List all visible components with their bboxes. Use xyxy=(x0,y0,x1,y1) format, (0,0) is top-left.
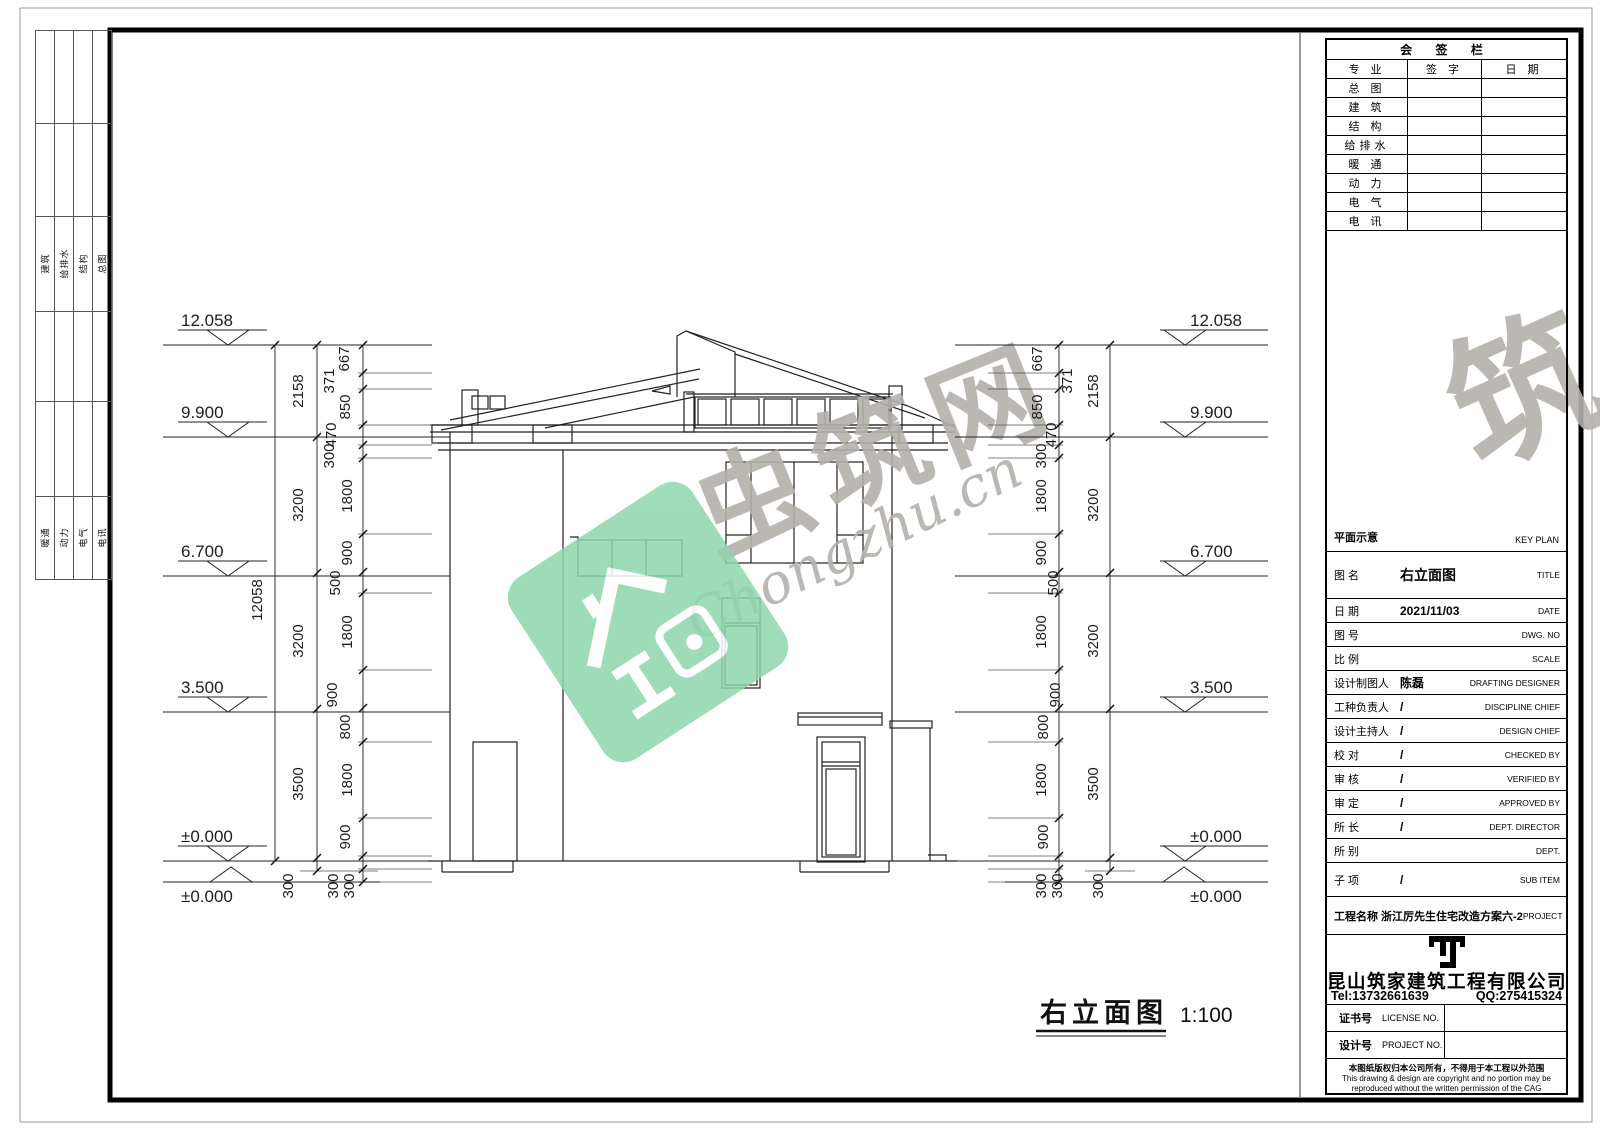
dim-text: 3500 xyxy=(290,767,307,800)
row-label-cn: 子 项 xyxy=(1327,872,1400,888)
discipline-label: 动 力 xyxy=(1327,174,1407,192)
strip-label: 建筑 xyxy=(36,216,54,311)
row-value: / xyxy=(1400,772,1507,786)
row-label-en: DEPT. xyxy=(1536,846,1566,856)
dim-text: 2158 xyxy=(1085,374,1102,407)
row-label-en: DWG. NO xyxy=(1522,630,1566,640)
discipline-label: 总 图 xyxy=(1327,79,1407,97)
dim-text: 850 xyxy=(1029,394,1046,419)
row-value: / xyxy=(1400,700,1485,714)
col-header: 日 期 xyxy=(1481,60,1566,78)
row-project-name: 工程名称 浙江厉先生住宅改造方案六-2 PROJECT xyxy=(1327,896,1566,934)
row-approved-by: 审 定 / APPROVED BY xyxy=(1327,790,1566,814)
left-fine-dimensions: 667 371 850 470 300 1800 900 500 1800 90… xyxy=(321,346,358,898)
dim-text: 800 xyxy=(337,714,354,739)
dim-text: 667 xyxy=(1029,346,1046,371)
strip-label: 动力 xyxy=(55,496,73,579)
drawing-label: 右立面图 1:100 xyxy=(1036,997,1233,1036)
drawing-sheet: 虫筑网 筑 Chongzhu.cn 667 371 850 470 300 18… xyxy=(0,0,1600,1130)
dim-text: 500 xyxy=(327,570,344,595)
col-header: 专 业 xyxy=(1327,60,1407,78)
row-value: / xyxy=(1400,724,1500,738)
dim-text: 300 xyxy=(321,443,338,468)
dim-text: 850 xyxy=(337,394,354,419)
signature-row: 动 力 xyxy=(1327,173,1566,192)
row-value: / xyxy=(1400,748,1505,762)
row-label-cn: 审 定 xyxy=(1327,795,1400,811)
signature-row: 建 筑 xyxy=(1327,97,1566,116)
row-label-cn: 审 核 xyxy=(1327,771,1400,787)
level-text: 12.058 xyxy=(181,311,233,330)
dim-text: 3200 xyxy=(290,488,307,521)
row-label-en: DISCIPLINE CHIEF xyxy=(1485,702,1566,712)
signature-row: 暖 通 xyxy=(1327,154,1566,173)
row-title: 图 名 右立面图 TITLE xyxy=(1327,551,1566,598)
discipline-label: 暖 通 xyxy=(1327,155,1407,173)
row-design-chief: 设计主持人 / DESIGN CHIEF xyxy=(1327,718,1566,742)
strip-divider xyxy=(36,311,111,312)
row-label-cn: 设计主持人 xyxy=(1327,723,1400,739)
row-label-cn: 所 别 xyxy=(1327,843,1400,859)
row-dept-director: 所 长 / DEPT. DIRECTOR xyxy=(1327,814,1566,838)
strip-label-text: 结构 xyxy=(77,253,90,273)
row-label-en: PROJECT xyxy=(1523,911,1569,921)
strip-label-text: 给排水 xyxy=(58,248,71,278)
license-label-cn: 证书号 xyxy=(1339,1010,1372,1026)
dim-text: 300 xyxy=(280,873,297,898)
dim-text: 2158 xyxy=(290,374,307,407)
dim-text: 800 xyxy=(1035,714,1052,739)
strip-label: 给排水 xyxy=(55,216,73,311)
strip-label: 电气 xyxy=(74,496,92,579)
key-plan-label-cn: 平面示意 xyxy=(1334,529,1378,545)
company-tel: Tel:13732661639 xyxy=(1331,989,1429,1003)
col-header: 签 字 xyxy=(1407,60,1481,78)
row-label-cn: 校 对 xyxy=(1327,747,1400,763)
level-text: 3.500 xyxy=(1190,678,1233,697)
dim-text: 300 xyxy=(1033,873,1050,898)
dim-text: 900 xyxy=(1035,824,1052,849)
binding-strip: 建筑 给排水 结构 总图 暖通 动力 电气 电讯 xyxy=(35,30,112,580)
dim-text: 300 xyxy=(1090,873,1107,898)
level-text: ±0.000 xyxy=(1190,887,1242,906)
license-label-en: LICENSE NO. xyxy=(1382,1013,1439,1023)
row-drafting-designer: 设计制图人 陈磊 DRAFTING DESIGNER xyxy=(1327,670,1566,694)
row-checked-by: 校 对 / CHECKED BY xyxy=(1327,742,1566,766)
level-text: 9.900 xyxy=(181,403,224,422)
signature-row: 总 图 xyxy=(1327,78,1566,97)
row-label-en: CHECKED BY xyxy=(1505,750,1566,760)
level-text: 6.700 xyxy=(1190,542,1233,561)
copyright-cn: 本图纸版权归本公司所有，不得用于本工程以外范围 xyxy=(1327,1062,1566,1074)
level-mark: 12.058 xyxy=(163,311,432,345)
strip-label: 结构 xyxy=(74,216,92,311)
dim-text: 3500 xyxy=(1085,767,1102,800)
row-label-cn: 设计制图人 xyxy=(1327,675,1400,691)
dim-text: 1800 xyxy=(339,615,356,648)
strip-divider xyxy=(36,123,111,124)
dim-text: 667 xyxy=(336,346,353,371)
dim-text: 900 xyxy=(324,682,341,707)
left-coarse-dimensions: 2158 3200 3200 3500 300 12058 xyxy=(249,374,307,898)
discipline-label: 给排水 xyxy=(1327,136,1407,154)
row-label-en: DEPT. DIRECTOR xyxy=(1489,822,1566,832)
drawing-scale-text: 1:100 xyxy=(1180,1004,1233,1027)
discipline-label: 结 构 xyxy=(1327,117,1407,135)
dim-text: 900 xyxy=(339,540,356,565)
row-label-en: DATE xyxy=(1538,606,1566,616)
strip-label-text: 建筑 xyxy=(39,253,52,273)
row-discipline-chief: 工种负责人 / DISCIPLINE CHIEF xyxy=(1327,694,1566,718)
copyright-en-line1: This drawing & design are copyright and … xyxy=(1327,1074,1566,1084)
row-label-cn: 图 号 xyxy=(1327,627,1400,643)
project-no-label-cn: 设计号 xyxy=(1339,1037,1372,1053)
row-label-cn: 日 期 xyxy=(1327,603,1400,619)
row-label-en: TITLE xyxy=(1537,570,1566,580)
level-text: 6.700 xyxy=(181,542,224,561)
right-coarse-dimensions: 2158 3200 3200 3500 300 xyxy=(1085,374,1107,898)
dim-text: 900 xyxy=(1033,540,1050,565)
signature-bar: 会 签 栏 专 业 签 字 日 期 总 图 建 筑 结 构 给排水 暖 通 动 … xyxy=(1327,40,1566,230)
row-label-en: VERIFIED BY xyxy=(1507,774,1566,784)
signature-header-row: 专 业 签 字 日 期 xyxy=(1327,59,1566,78)
strip-label-text: 电讯 xyxy=(96,527,109,547)
row-value: / xyxy=(1400,796,1499,810)
level-text: ±0.000 xyxy=(1190,827,1242,846)
level-mark: 3.500 xyxy=(163,678,450,712)
dim-text: 1800 xyxy=(339,479,356,512)
row-label-en: APPROVED BY xyxy=(1499,798,1566,808)
strip-label: 暖通 xyxy=(36,496,54,579)
dim-text: 900 xyxy=(337,824,354,849)
strip-label-text: 电气 xyxy=(77,527,90,547)
row-sub-item: 子 项 / SUB ITEM xyxy=(1327,862,1566,896)
dim-text: 500 xyxy=(1045,570,1062,595)
strip-label: 总图 xyxy=(93,216,111,311)
discipline-label: 电 气 xyxy=(1327,193,1407,211)
level-text: ±0.000 xyxy=(181,887,233,906)
drawing-title-text: 右立面图 xyxy=(1040,997,1168,1028)
level-text: 9.900 xyxy=(1190,403,1233,422)
row-dwg-no: 图 号 DWG. NO xyxy=(1327,622,1566,646)
discipline-label: 建 筑 xyxy=(1327,98,1407,116)
level-text: 12.058 xyxy=(1190,311,1242,330)
dim-text: 3200 xyxy=(1085,624,1102,657)
key-plan-label-en: KEY PLAN xyxy=(1515,535,1559,545)
row-value: 陈磊 xyxy=(1400,674,1470,691)
row-project-no: 设计号 PROJECT NO. xyxy=(1327,1031,1566,1058)
row-label-en: SUB ITEM xyxy=(1520,875,1566,885)
signature-row: 电 讯 xyxy=(1327,211,1566,230)
level-text: 3.500 xyxy=(181,678,224,697)
company-block: 昆山筑家建筑工程有限公司 Tel:13732661639 QQ:27541532… xyxy=(1327,934,1566,1004)
copyright-block: 本图纸版权归本公司所有，不得用于本工程以外范围 This drawing & d… xyxy=(1327,1058,1566,1096)
dim-text: 900 xyxy=(1047,682,1064,707)
row-label-cn: 比 例 xyxy=(1327,651,1400,667)
company-qq: QQ:275415324 xyxy=(1476,989,1562,1003)
row-label-cn: 工种负责人 xyxy=(1327,699,1400,715)
signature-row: 给排水 xyxy=(1327,135,1566,154)
row-date: 日 期 2021/11/03 DATE xyxy=(1327,598,1566,622)
row-label-en: DESIGN CHIEF xyxy=(1500,726,1566,736)
strip-label-text: 动力 xyxy=(58,527,71,547)
dim-text: 300 xyxy=(341,873,358,898)
discipline-label: 电 讯 xyxy=(1327,212,1407,230)
strip-label-text: 暖通 xyxy=(39,527,52,547)
row-value: 2021/11/03 xyxy=(1400,604,1538,618)
row-label-cn: 所 长 xyxy=(1327,819,1400,835)
row-label-cn: 图 名 xyxy=(1327,567,1400,583)
dim-text: 3200 xyxy=(1085,488,1102,521)
dim-text: 3200 xyxy=(290,624,307,657)
signature-row: 结 构 xyxy=(1327,116,1566,135)
row-verified-by: 审 核 / VERIFIED BY xyxy=(1327,766,1566,790)
key-plan-box: 平面示意 KEY PLAN xyxy=(1327,230,1566,551)
dim-text: 300 xyxy=(325,873,342,898)
row-label-en: SCALE xyxy=(1532,654,1566,664)
row-value: 右立面图 xyxy=(1400,565,1537,585)
project-no-label-en: PROJECT NO. xyxy=(1382,1040,1442,1050)
dim-text: 1800 xyxy=(339,763,356,796)
copyright-en-line2: reproduced without the written permissio… xyxy=(1327,1084,1566,1094)
level-text: ±0.000 xyxy=(181,827,233,846)
dim-text: 371 xyxy=(1059,368,1076,393)
row-scale: 比 例 SCALE xyxy=(1327,646,1566,670)
level-mark: 6.700 xyxy=(163,542,450,576)
dim-text: 1800 xyxy=(1033,763,1050,796)
company-logo-icon xyxy=(1427,936,1467,968)
row-value: / xyxy=(1400,820,1489,834)
dim-text: 300 xyxy=(1049,873,1066,898)
dim-text: 300 xyxy=(1033,443,1050,468)
project-name-text: 工程名称 浙江厉先生住宅改造方案六-2 xyxy=(1327,908,1523,924)
dim-text: 1800 xyxy=(1033,615,1050,648)
row-value: / xyxy=(1400,873,1520,887)
strip-label-text: 总图 xyxy=(96,253,109,273)
title-block: 会 签 栏 专 业 签 字 日 期 总 图 建 筑 结 构 给排水 暖 通 动 … xyxy=(1325,38,1568,1095)
row-dept: 所 别 DEPT. xyxy=(1327,838,1566,862)
row-license-no: 证书号 LICENSE NO. xyxy=(1327,1004,1566,1031)
signature-row: 电 气 xyxy=(1327,192,1566,211)
strip-label: 电讯 xyxy=(93,496,111,579)
overall-dimension-text: 12058 xyxy=(249,579,266,621)
signature-bar-title: 会 签 栏 xyxy=(1327,40,1566,59)
row-label-en: DRAFTING DESIGNER xyxy=(1470,678,1566,688)
dim-text: 371 xyxy=(321,368,338,393)
strip-divider xyxy=(36,401,111,402)
dim-text: 1800 xyxy=(1033,479,1050,512)
